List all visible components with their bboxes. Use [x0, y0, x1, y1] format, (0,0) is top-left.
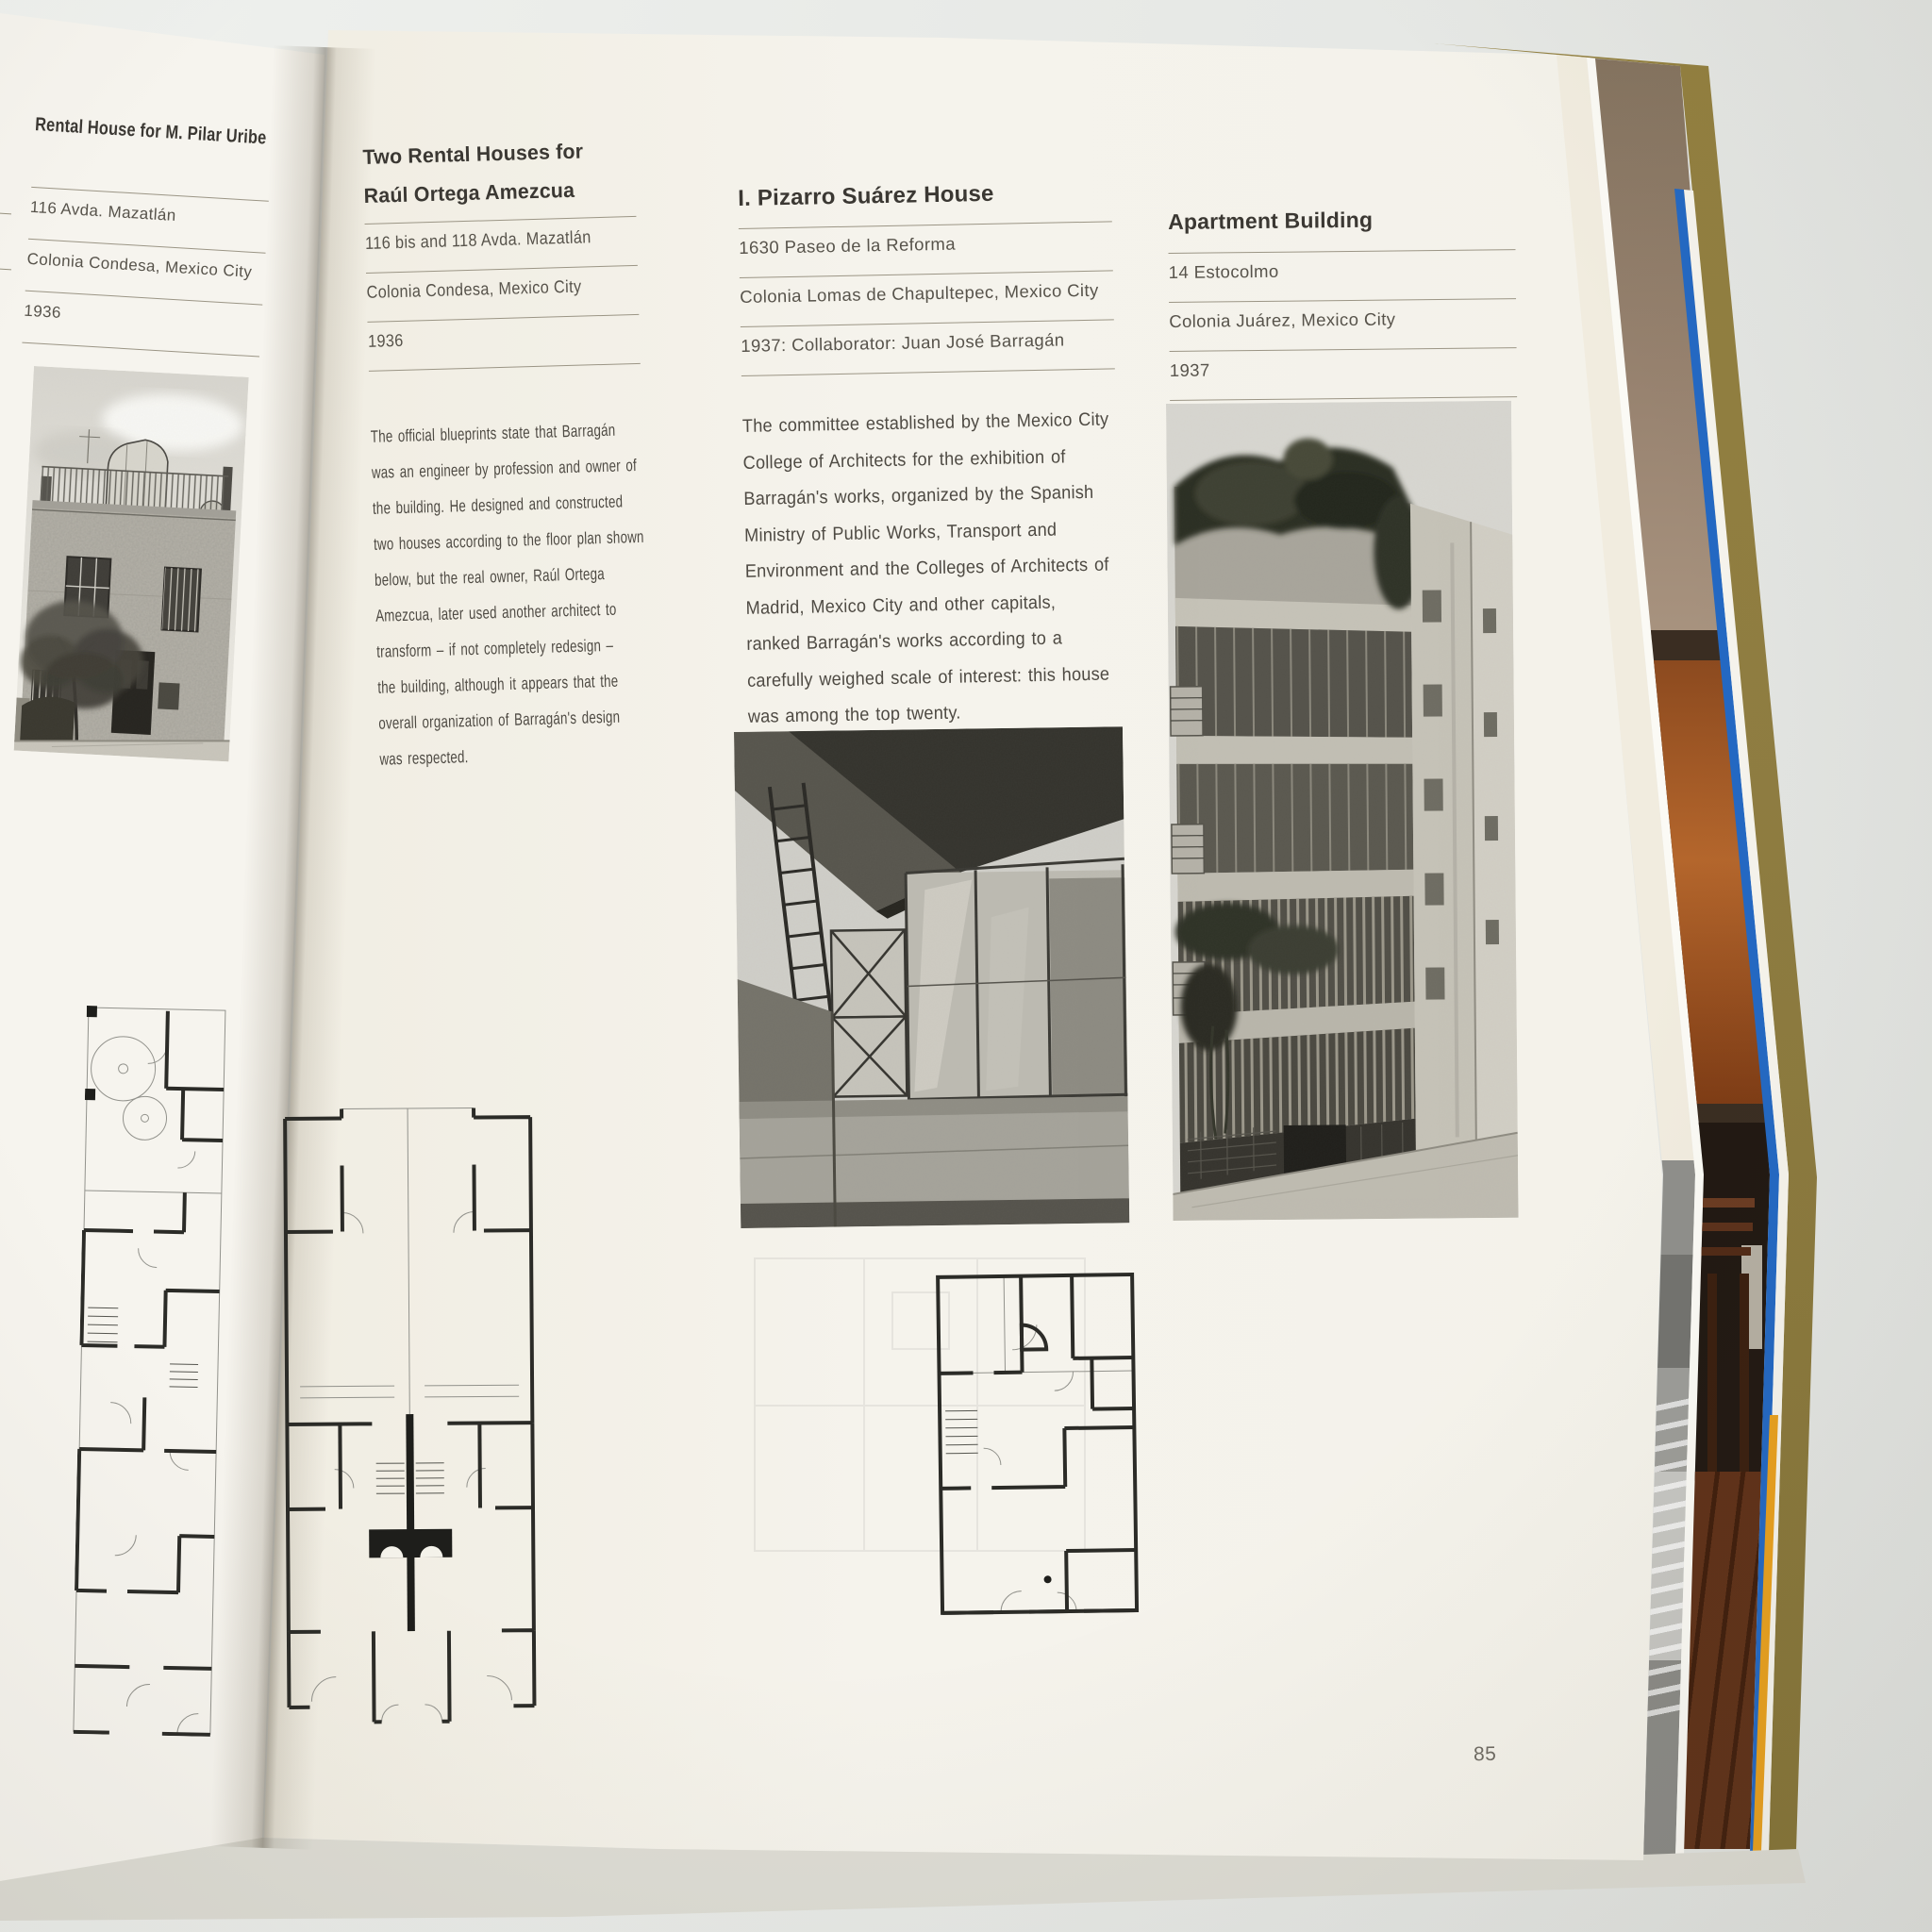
column-uribe: Rental House for M. Pilar Uribe 116 Avda… — [22, 111, 275, 358]
address-line: 116 bis and 118 Avda. Mazatlán — [365, 216, 638, 273]
uribe-floor-plan — [72, 1006, 228, 1737]
column-ortega: Two Rental Houses for Raúl Ortega Amezcu… — [362, 130, 654, 777]
ortega-floor-plan — [279, 1102, 541, 1728]
address-line: Colonia Juárez, Mexico City — [1169, 298, 1517, 351]
pizarro-title: I. Pizarro Suárez House — [738, 177, 1114, 213]
address-line: Colonia Lomas de Chapultepec, Mexico Cit… — [740, 270, 1114, 326]
page-number: 85 — [1474, 1743, 1497, 1766]
address-line: Colonia Condesa, Mexico City — [366, 265, 639, 322]
uribe-address-block: 116 Avda. Mazatlán Colonia Condesa, Mexi… — [22, 187, 268, 358]
ortega-address-block: 116 bis and 118 Avda. Mazatlán Colonia C… — [365, 216, 641, 372]
apartment-building-photo — [1166, 401, 1519, 1221]
ortega-body: The official blueprints state that Barra… — [370, 410, 673, 777]
address-line: 1937 — [1170, 347, 1518, 400]
apartment-floor-plan — [930, 1267, 1144, 1623]
apartment-address-block: 14 Estocolmo Colonia Juárez, Mexico City… — [1169, 249, 1518, 401]
column-pizarro: I. Pizarro Suárez House 1630 Paseo de la… — [738, 177, 1124, 735]
column-apartment: Apartment Building 14 Estocolmo Colonia … — [1168, 204, 1521, 401]
apartment-title: Apartment Building — [1168, 204, 1519, 236]
address-line: 14 Estocolmo — [1169, 249, 1517, 302]
ortega-title: Two Rental Houses for Raúl Ortega Amezcu… — [362, 130, 639, 215]
book-spread-photo: Rental House for M. Pilar Uribe 116 Avda… — [0, 0, 1932, 1932]
pizarro-address-block: 1630 Paseo de la Reforma Colonia Lomas d… — [739, 221, 1115, 376]
pizarro-body: The committee established by the Mexico … — [742, 401, 1143, 735]
pizarro-house-photo — [734, 726, 1129, 1228]
address-line: 1936 — [367, 314, 640, 371]
uribe-house-photo — [14, 366, 249, 761]
address-line: 1937: Collaborator: Juan José Barragán — [741, 319, 1115, 375]
address-line: 1630 Paseo de la Reforma — [739, 221, 1113, 277]
